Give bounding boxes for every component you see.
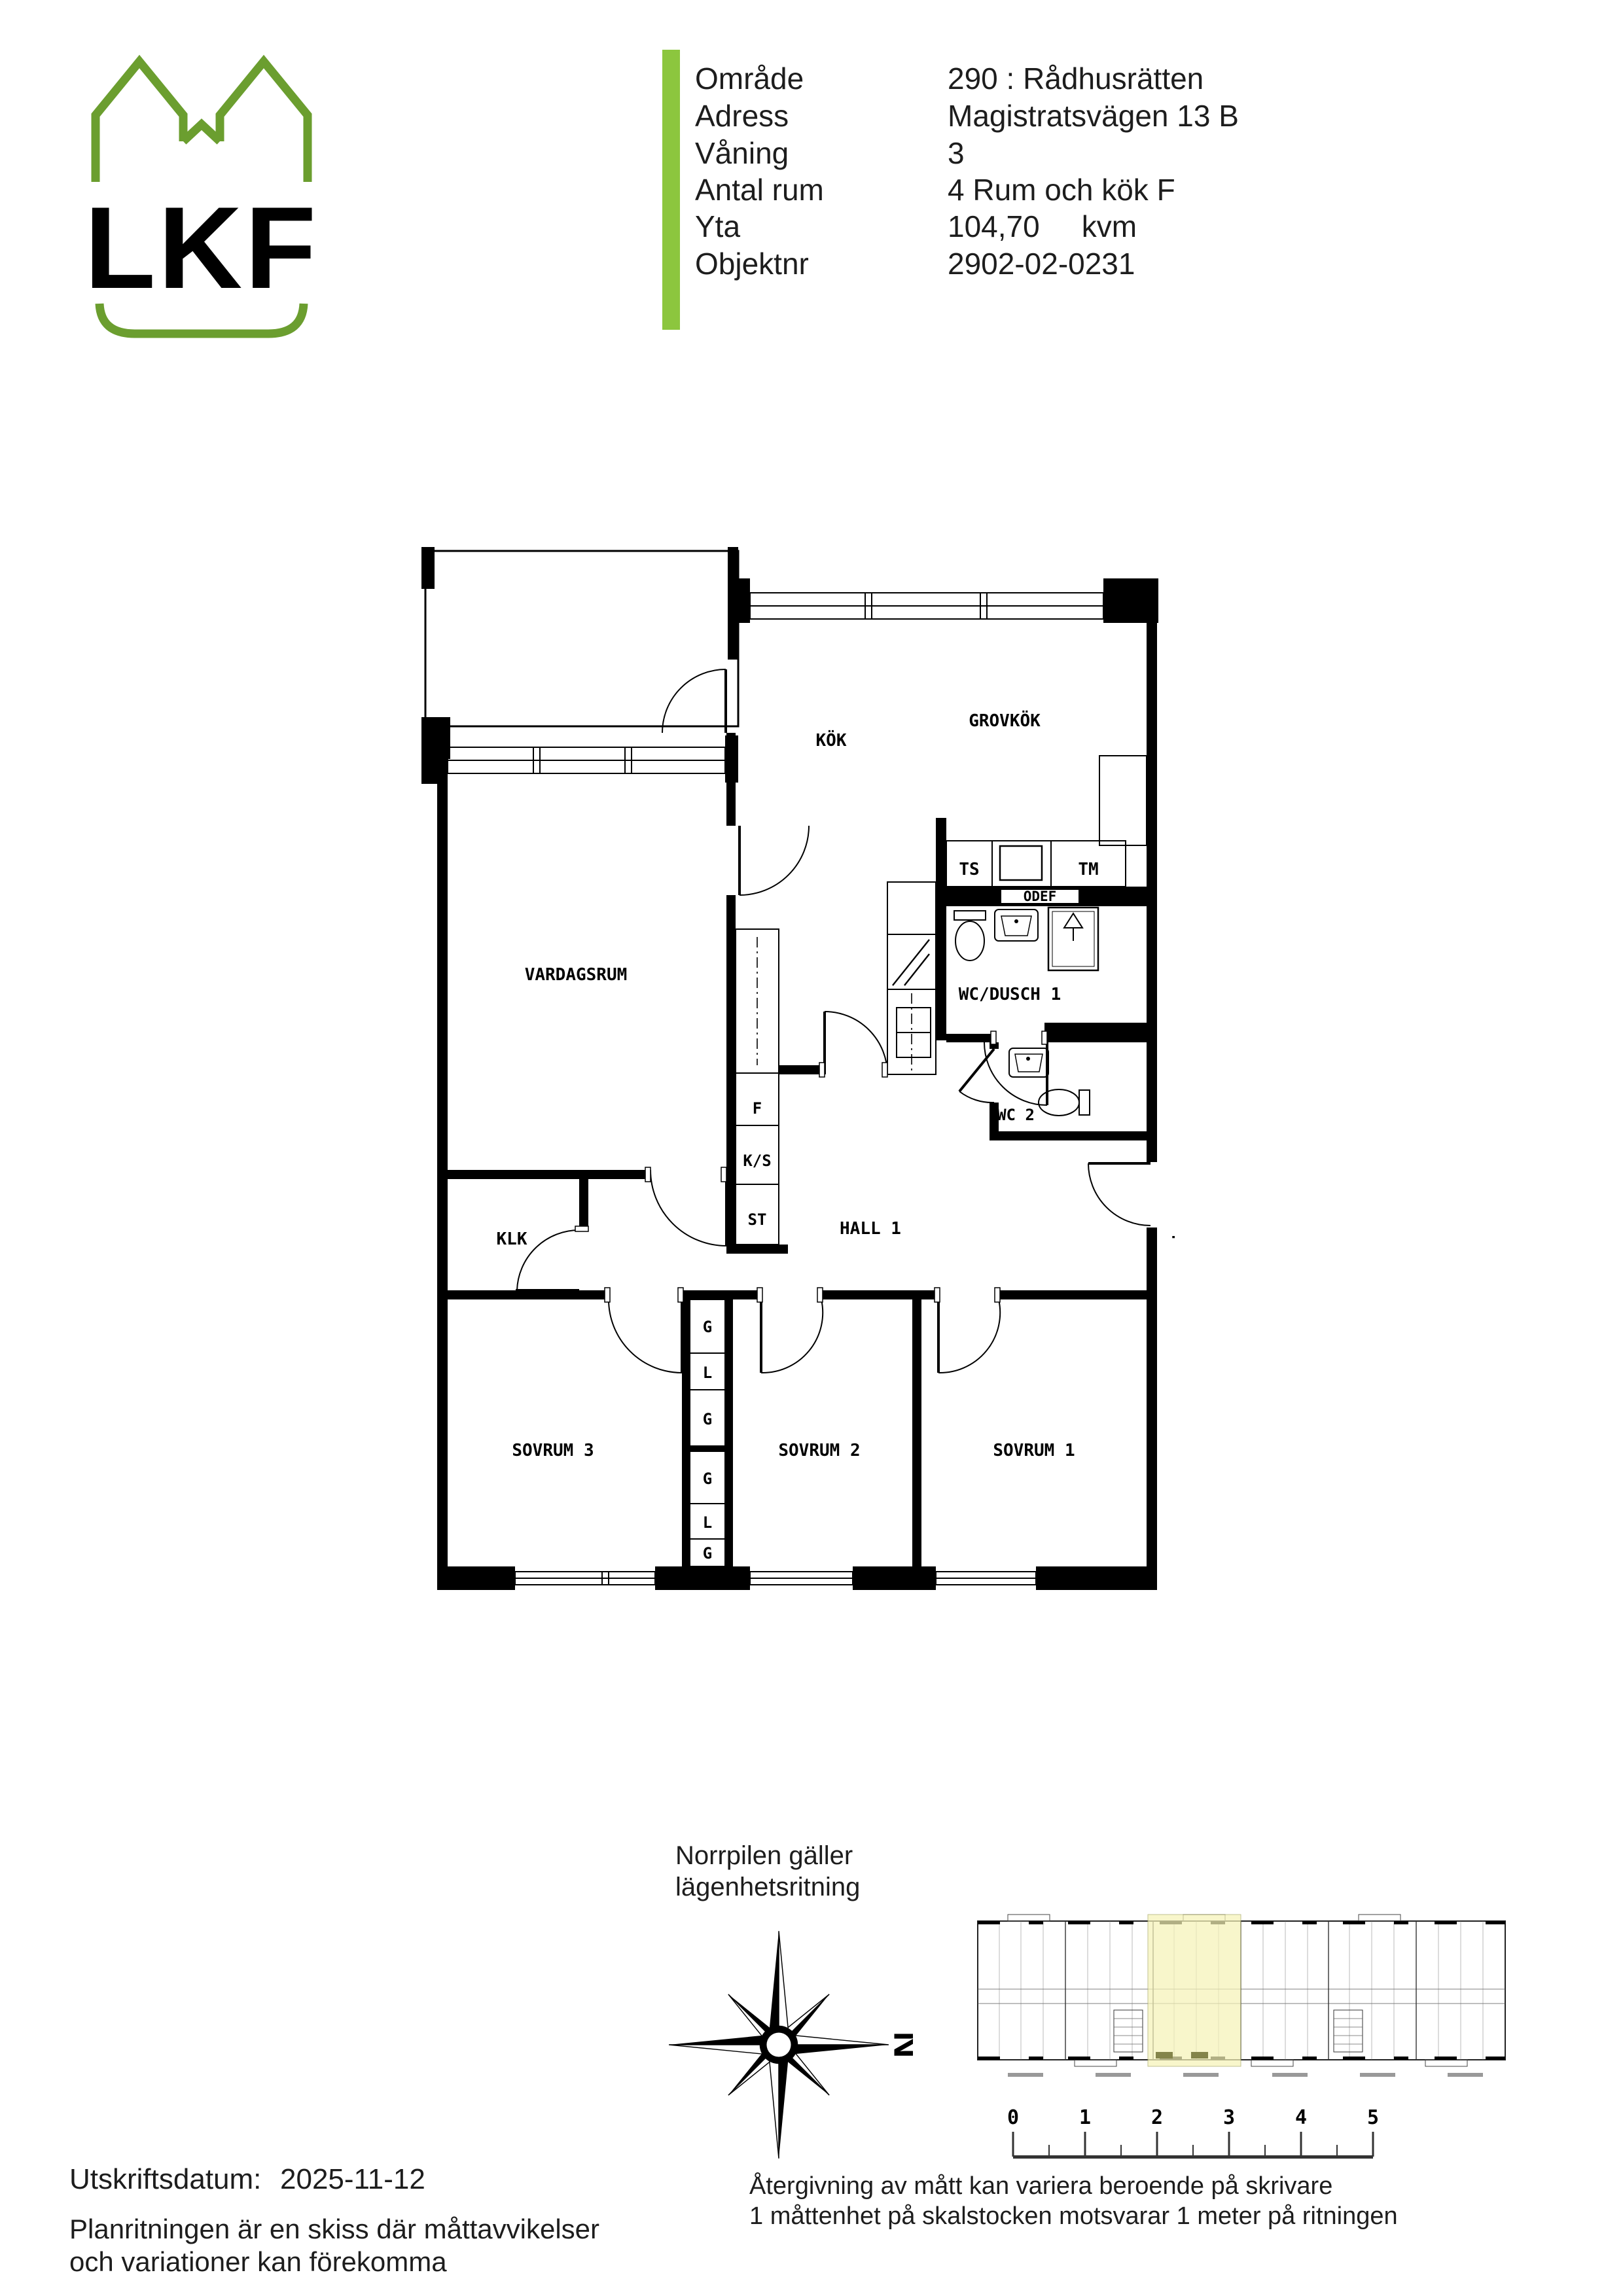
scale-caption-line1: Återgivning av mått kan variera beroende… (749, 2171, 1398, 2201)
closet-label-1: L (703, 1364, 712, 1382)
room-label-kok: KÖK (816, 729, 847, 751)
minimap-unit-number-marks (1008, 2073, 1483, 2077)
balcony (425, 551, 738, 733)
field-label-adress: Adress (695, 99, 789, 133)
fixture-label-tm: TM (1078, 860, 1098, 879)
green-divider-bar (662, 50, 680, 330)
wall-openings (515, 1162, 1157, 1590)
scale-tick-2: 2 (1151, 2106, 1163, 2129)
closet-label-3: G (703, 1470, 712, 1488)
fixture-label-odef: ODEF (1024, 889, 1057, 904)
cabinet-label-f: F (753, 1099, 762, 1118)
disclaimer-line1: Planritningen är en skiss där måttavvike… (69, 2213, 599, 2246)
disclaimer-line2: och variationer kan förekomma (69, 2246, 599, 2278)
disclaimer: Planritningen är en skiss där måttavvike… (69, 2213, 599, 2278)
room-label-wc2: WC 2 (997, 1106, 1035, 1124)
apartment-floor-plan: VARDAGSRUM KÖK GROVKÖK TS TM ODEF WC/DUS… (412, 510, 1175, 1616)
closet-label-4: L (703, 1513, 712, 1532)
room-label-grovkok: GROVKÖK (969, 709, 1041, 731)
minimap-structure (978, 1915, 1505, 2066)
toilet-bowl-icon (955, 921, 984, 961)
entrance-label-t: T (1171, 1233, 1175, 1253)
yta-number: 104,70 (948, 209, 1040, 243)
field-value-objektnr: 2902-02-0231 (948, 247, 1135, 281)
logo-text: LKF (84, 183, 319, 313)
lkf-logo: LKF (84, 51, 319, 339)
scale-baseline (1013, 2155, 1373, 2159)
cathedral-towers-icon (96, 62, 308, 182)
room-label-klk: KLK (497, 1229, 527, 1249)
floorplan-document-page: LKF Område 290 : Rådhusrätten Adress Mag… (0, 0, 1623, 2296)
toilet-tank-icon (954, 911, 986, 920)
highlight-accent-2 (1191, 2052, 1208, 2058)
scale-caption: Återgivning av mått kan variera beroende… (749, 2171, 1398, 2231)
scale-tick-1: 1 (1079, 2106, 1091, 2129)
field-label-vaning: Våning (695, 136, 789, 170)
wc2-toilet-icon (1039, 1089, 1079, 1116)
field-value-adress: Magistratsvägen 13 B (948, 99, 1239, 133)
closet-label-5: G (703, 1544, 712, 1563)
north-note-line2: lägenhetsritning (675, 1871, 860, 1903)
room-label-sovrum1: SOVRUM 1 (993, 1441, 1075, 1460)
scale-bar: 0 1 2 3 4 5 (1008, 2106, 1400, 2166)
cabinet-label-st: ST (748, 1210, 767, 1229)
field-label-objektnr: Objektnr (695, 247, 809, 281)
scale-tick-4: 4 (1295, 2106, 1307, 2129)
north-note: Norrpilen gäller lägenhetsritning (675, 1840, 860, 1903)
scale-tick-3: 3 (1223, 2106, 1235, 2129)
room-label-wc-dusch1: WC/DUSCH 1 (959, 985, 1061, 1004)
scale-tick-5: 5 (1367, 2106, 1379, 2129)
scale-tick-0: 0 (1008, 2106, 1019, 2129)
north-note-line1: Norrpilen gäller (675, 1840, 860, 1871)
compass-hub-center (766, 2032, 791, 2057)
highlight-accent-1 (1156, 2052, 1173, 2058)
field-value-omrade: 290 : Rådhusrätten (948, 62, 1204, 96)
bathroom-fixtures (954, 908, 1098, 1116)
building-overview-map (970, 1912, 1513, 2083)
print-date-label: Utskriftsdatum: (69, 2163, 261, 2196)
compass-rose-icon: N (645, 1911, 913, 2179)
yta-unit: kvm (1082, 209, 1137, 243)
field-label-yta: Yta (695, 209, 740, 243)
field-value-yta: 104,70kvm (948, 209, 1137, 243)
room-label-vardagsrum: VARDAGSRUM (525, 965, 628, 985)
room-label-sovrum2: SOVRUM 2 (778, 1441, 860, 1460)
closet-label-2: G (703, 1410, 712, 1428)
room-label-sovrum3: SOVRUM 3 (512, 1441, 594, 1460)
scale-numbers: 0 1 2 3 4 5 (1008, 2106, 1379, 2129)
scale-ticks (1013, 2132, 1373, 2157)
room-label-hall1: HALL 1 (840, 1219, 901, 1239)
field-label-omrade: Område (695, 62, 804, 96)
cabinet-label-ks: K/S (743, 1152, 771, 1170)
closet-label-0: G (703, 1318, 712, 1336)
field-value-vaning: 3 (948, 136, 965, 170)
field-label-antal-rum: Antal rum (695, 173, 824, 207)
field-value-antal-rum: 4 Rum och kök F (948, 173, 1175, 207)
compass-north-letter: N (886, 2032, 913, 2058)
print-date-value: 2025-11-12 (280, 2163, 425, 2196)
fixture-label-ts: TS (959, 860, 979, 879)
highlighted-apartment-overlay (1148, 1915, 1241, 2066)
scale-caption-line2: 1 måttenhet på skalstocken motsvarar 1 m… (749, 2201, 1398, 2231)
